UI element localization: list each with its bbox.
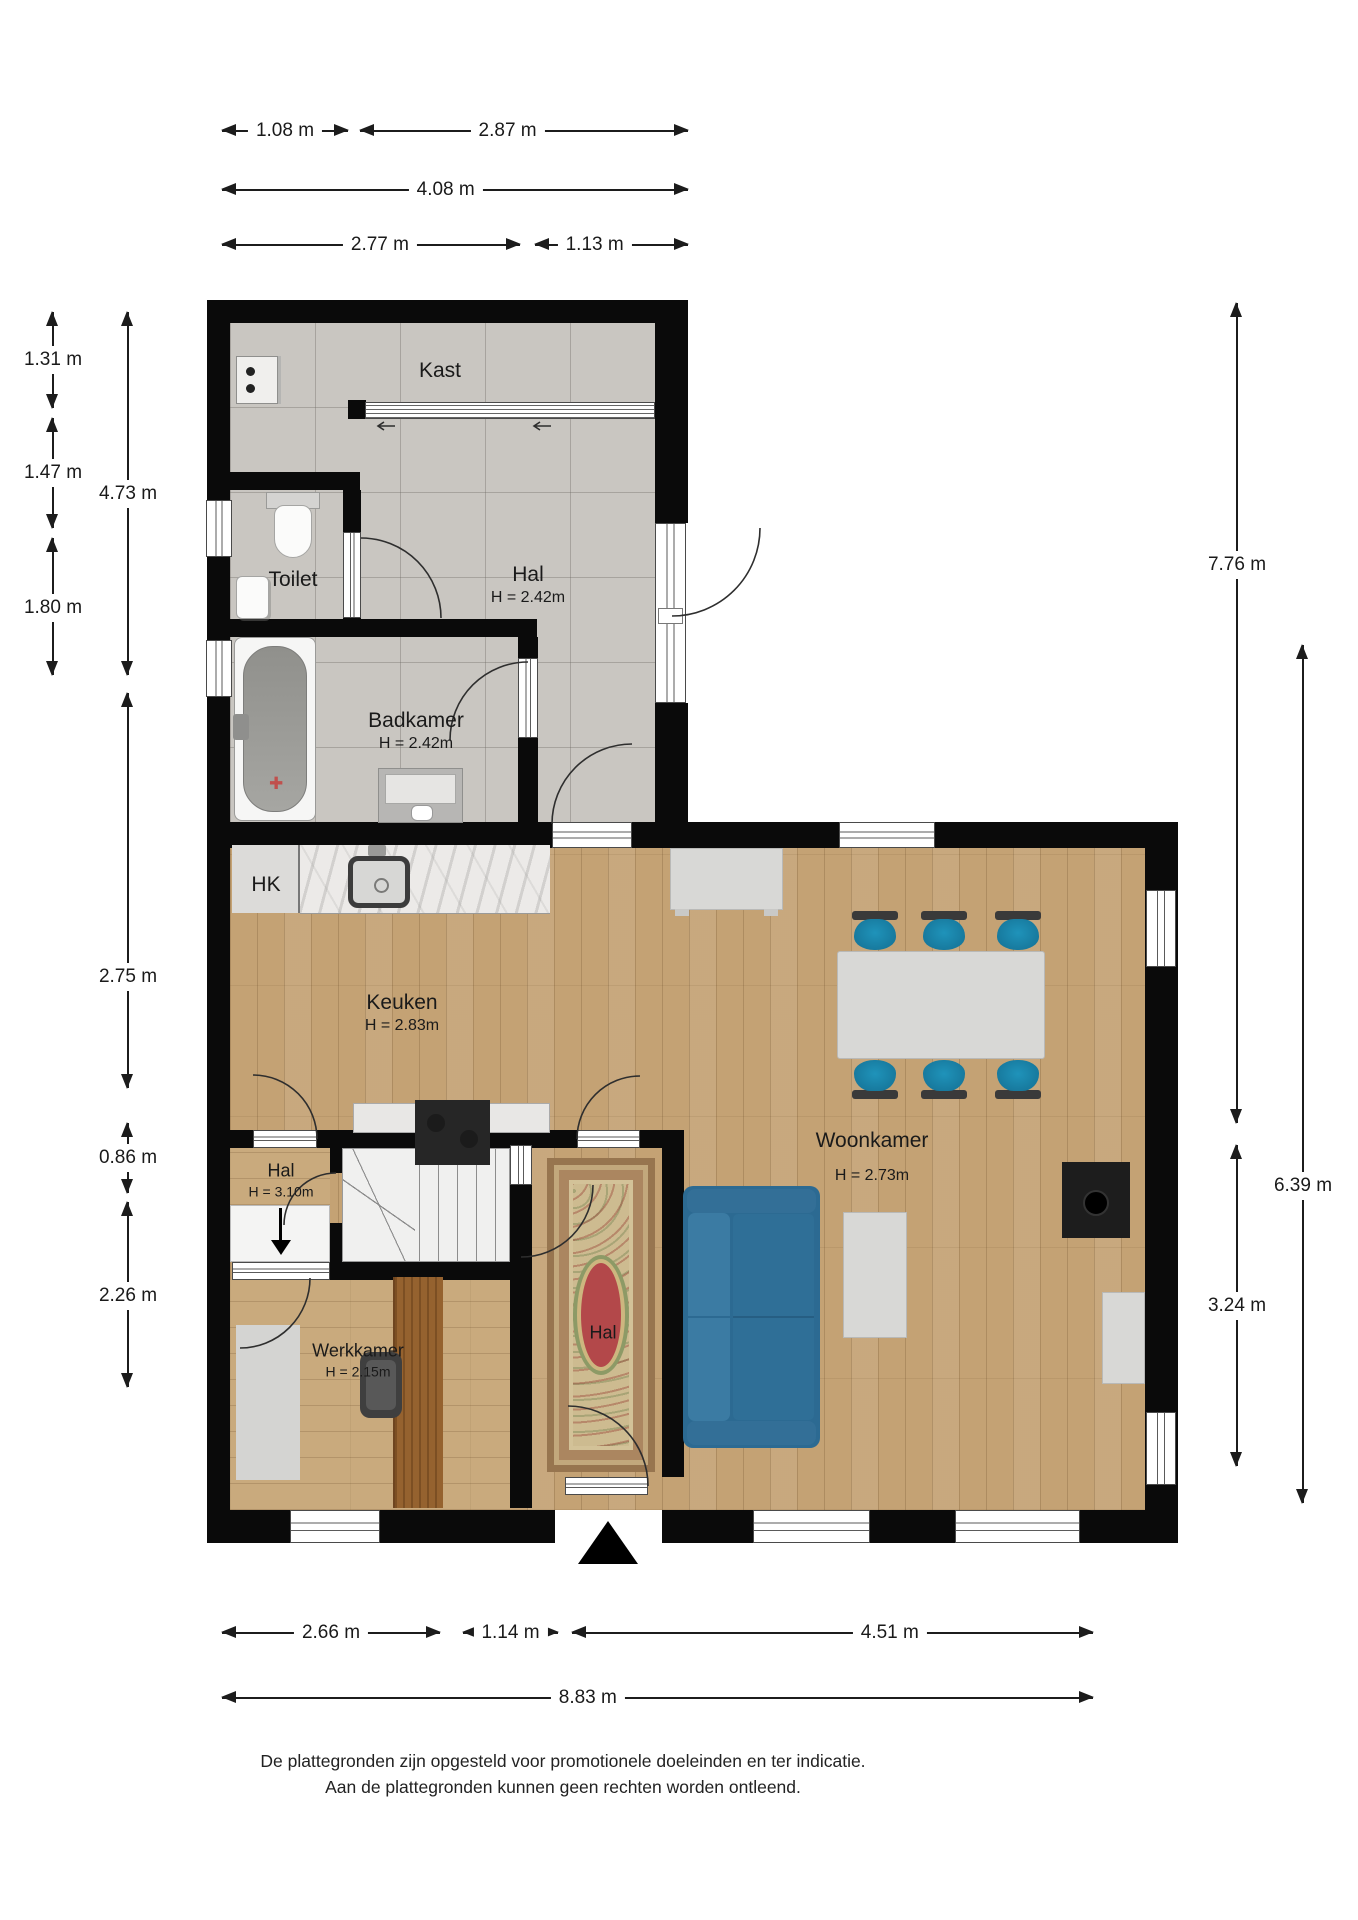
wall-left [207,300,230,1543]
window-werkkamer-bottom [290,1510,380,1543]
stairs-winder [343,1149,415,1261]
room-label-keuken: KeukenH = 2.83m [365,991,439,1035]
bathtub: ✚ [234,637,316,821]
rug-medallion [581,1263,621,1367]
room-label-hal-upper: HalH = 2.42m [491,563,565,607]
meter-cabinet [236,356,278,404]
rug [547,1158,655,1472]
bathtub-faucet [233,714,249,740]
wall-mid-b [632,822,839,848]
wall-stairs-hall [510,1185,532,1508]
wall-bottom-d [870,1510,955,1543]
room-label-woonkamer: WoonkamerH = 2.73m [816,1129,929,1185]
wall-core-top-a [230,1130,253,1148]
window-right-upper [1146,890,1176,967]
disclaimer-line-2: Aan de plattegronden kunnen geen rechten… [163,1774,963,1800]
wall-hall-woonkamer [662,1148,684,1477]
room-label-hk: HK [251,873,280,897]
wall-badkamer-top [230,619,537,637]
wall-core-v1-a [330,1148,342,1173]
door-badkamer [518,658,538,738]
entrance-arrow-icon [578,1521,638,1564]
dining-table [837,951,1045,1059]
toilet-bowl [274,505,312,558]
door-hal-woonkamer [552,822,632,848]
burner [460,1130,478,1148]
stair-down-arrowhead-icon [271,1240,291,1255]
sofa-armrest [687,1189,816,1213]
sideboard-foot [764,909,778,916]
wall-toilet-top [230,472,360,490]
coffee-table [843,1212,907,1338]
dining-stool [992,911,1044,951]
dining-stool [992,1059,1044,1099]
door-stairs-hall [510,1145,532,1185]
sofa-back-cushions [688,1213,730,1421]
disclaimer: De plattegronden zijn opgesteld voor pro… [163,1748,963,1800]
room-label-toilet: Toilet [268,568,317,592]
wall-core-v1-b [330,1223,342,1280]
wall-bottom-e [1080,1510,1178,1543]
window-badkamer [206,640,232,697]
kitchen-counter [300,845,550,914]
wall-badkamer-right-b [518,738,538,822]
floorplan-page: ✚ [0,0,1358,1920]
room-label-kast: Kast [419,359,461,383]
wall-bottom-b [380,1510,555,1543]
meter-dot [246,384,255,393]
window-woonkamer-bottom-1 [753,1510,870,1543]
door-front [565,1477,648,1495]
window-right-lower [1146,1412,1176,1485]
dining-stool [918,1059,970,1099]
sliding-door-kast [365,402,655,419]
room-label-hal-entree: Hal [589,1323,616,1344]
stair-down-arrow-icon [279,1208,282,1242]
sideboard [670,848,783,910]
room-label-werkkamer: WerkkamerH = 2.15m [312,1341,404,1380]
meter-dot [246,367,255,376]
fireplace-ring [1083,1190,1109,1216]
wall-bottom-a [207,1510,290,1543]
wall-core-top-c [640,1130,684,1148]
room-label-badkamer: BadkamerH = 2.42m [368,709,464,753]
burner [427,1114,445,1132]
sink-drain [374,878,389,893]
dining-stool [849,911,901,951]
vanity-sink [378,768,463,823]
wall-right-upper-a [655,300,688,523]
sofa [683,1186,820,1448]
door-hall-keuken [577,1130,640,1148]
washbasin [236,576,269,619]
window-woonkamer-top [839,822,935,848]
window-woonkamer-bottom-2 [955,1510,1080,1543]
fireplace [1062,1162,1130,1238]
sideboard-foot [675,909,689,916]
door-toilet [343,532,361,618]
vanity-bowl [411,805,433,821]
wall-toilet-right-a [343,490,361,532]
door-panel-joint [658,608,683,624]
wall-mid-c [935,822,1178,848]
disclaimer-line-1: De plattegronden zijn opgesteld voor pro… [163,1748,963,1774]
dining-stool [849,1059,901,1099]
wall-kast-stub [348,400,366,419]
wall-top-upper [207,300,688,323]
door-back-entrance [655,523,686,703]
dining-stool [918,911,970,951]
stove [415,1100,490,1165]
wall-badkamer-right-a [518,637,538,658]
room-label-hal-inner: HalH = 3.10m [249,1161,314,1200]
tv-cabinet [1102,1292,1145,1384]
sofa-seat-cushions [733,1214,814,1420]
sofa-armrest [687,1421,816,1445]
door-landing-werkkamer [232,1262,330,1280]
wall-bottom-c [662,1510,753,1543]
werkkamer-mat [236,1325,300,1480]
kitchen-faucet [368,845,386,856]
window-toilet [206,500,232,557]
vanity-top [385,774,456,804]
door-innerhal-keuken [253,1130,317,1148]
stairs [342,1148,510,1262]
kitchen-sink [348,856,410,908]
shower-head-icon: ✚ [269,776,285,792]
